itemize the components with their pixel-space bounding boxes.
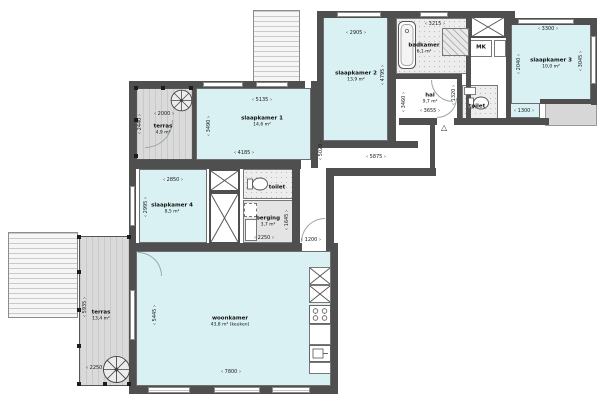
window — [148, 387, 190, 393]
window — [130, 290, 135, 340]
washbasin-icon — [464, 87, 476, 95]
floor-plan: △ terras4,9 m² slaapkamer 114,6 m² slaap… — [0, 0, 600, 400]
spiral-stair-bottom-icon — [102, 355, 131, 384]
lift-shaft-1-x-icon — [209, 169, 240, 192]
dimension-label: 1200 — [301, 237, 321, 243]
room-label-slaapkamer-3: slaapkamer 310,0 m² — [530, 58, 572, 71]
room-label-hal: hal9,7 m² — [423, 93, 438, 106]
dimension-label: 2995 — [143, 197, 149, 217]
wall — [399, 118, 437, 125]
toilet-mid-icon — [247, 176, 269, 192]
dimension-label: 5935 — [82, 297, 88, 317]
wall — [454, 118, 462, 125]
kitchen-counter-end — [309, 362, 331, 374]
kitchen-cabinet-1-x-icon — [309, 267, 331, 285]
window — [420, 12, 448, 17]
wall — [457, 79, 462, 120]
railing-post — [103, 382, 107, 386]
window — [272, 387, 310, 393]
railing-post — [77, 344, 81, 348]
wall — [331, 246, 338, 394]
lift-shaft-2-x-icon — [209, 192, 240, 244]
dimension-label: 1645 — [284, 210, 290, 230]
room-label-slaapkamer-1: slaapkamer 114,6 m² — [241, 116, 283, 129]
dimension-label: 3490 — [206, 116, 212, 136]
wall — [129, 160, 301, 169]
window — [203, 82, 243, 87]
room-label-toilet-top: toilet — [469, 104, 486, 111]
balcony-door — [256, 82, 288, 87]
spiral-stair-top-icon — [170, 89, 193, 112]
cooktop-icon — [309, 305, 331, 324]
balcony-top-hatched — [253, 10, 300, 82]
dimension-label: 2040 — [516, 54, 522, 74]
dimension-label: 1320 — [451, 85, 457, 105]
dimension-label: 5875 — [366, 154, 386, 160]
room-label-terras-top: terras4,9 m² — [154, 124, 173, 137]
kitchen-sink-icon — [309, 345, 331, 362]
railing-post — [134, 86, 138, 90]
room-label-toilet-mid: toilet — [269, 185, 286, 192]
room-label-meterkast: MK — [476, 45, 486, 52]
dimension-label: 3300 — [538, 26, 558, 32]
railing-post — [161, 86, 165, 90]
room-label-berging: berging3,7 m² — [256, 216, 280, 229]
room-label-woonkamer: woonkamer43,8 m² (keuken) — [211, 316, 250, 329]
dimension-label: 1300 — [514, 108, 534, 114]
entrance-triangle-marker: △ — [441, 124, 447, 132]
dimension-label: 3215 — [425, 21, 445, 27]
dimension-label: 4795 — [380, 65, 386, 85]
dimension-label: 5020 — [318, 140, 324, 160]
wall — [326, 168, 436, 176]
wall — [292, 162, 300, 246]
dimension-label: 3460 — [401, 92, 407, 112]
railing-post — [127, 382, 131, 386]
dimension-label: 5135 — [252, 97, 272, 103]
wall — [129, 243, 302, 251]
terrace-outer-bottom-left — [8, 232, 78, 318]
wall — [317, 141, 418, 148]
wall — [396, 74, 462, 79]
wall — [388, 11, 396, 142]
room-label-terras-bottom: terras13,4 m² — [92, 310, 111, 323]
wall — [326, 243, 338, 251]
shaft-top-x-icon — [470, 16, 506, 38]
railing-post — [127, 235, 131, 239]
wall — [430, 125, 435, 176]
window — [591, 36, 596, 84]
dimension-label: 5445 — [152, 305, 158, 325]
wall — [506, 18, 511, 119]
railing-post — [189, 86, 193, 90]
room-label-badkamer: badkamer6,1 m² — [408, 43, 439, 56]
railing-post — [77, 308, 81, 312]
cabinet-top — [494, 40, 506, 57]
kitchen-cabinet-2-x-icon — [309, 285, 331, 303]
dimension-label: 2905 — [346, 30, 366, 36]
shower-icon — [442, 28, 469, 56]
railing-post — [77, 382, 81, 386]
kitchen-counter — [309, 324, 331, 345]
window — [214, 387, 260, 393]
dimension-label: 2250 — [254, 235, 274, 241]
dimension-label: 4185 — [234, 150, 254, 156]
room-label-slaapkamer-2: slaapkamer 213,9 m² — [335, 71, 377, 84]
window — [337, 12, 381, 17]
wall — [459, 118, 549, 125]
dimension-label: 3045 — [578, 51, 584, 71]
dimension-label: 7800 — [221, 369, 241, 375]
railing-post — [134, 154, 138, 158]
room-label-slaapkamer-4: slaapkamer 48,5 m² — [151, 203, 193, 216]
wall — [540, 99, 597, 104]
railing-post — [134, 118, 138, 122]
wall — [326, 176, 334, 246]
railing-post — [77, 270, 81, 274]
wall — [317, 15, 323, 143]
window — [518, 19, 574, 24]
wall — [193, 88, 196, 160]
dimension-label: 2850 — [163, 177, 183, 183]
dimension-label: 3655 — [420, 108, 440, 114]
railing-post — [77, 235, 81, 239]
window — [130, 186, 135, 226]
